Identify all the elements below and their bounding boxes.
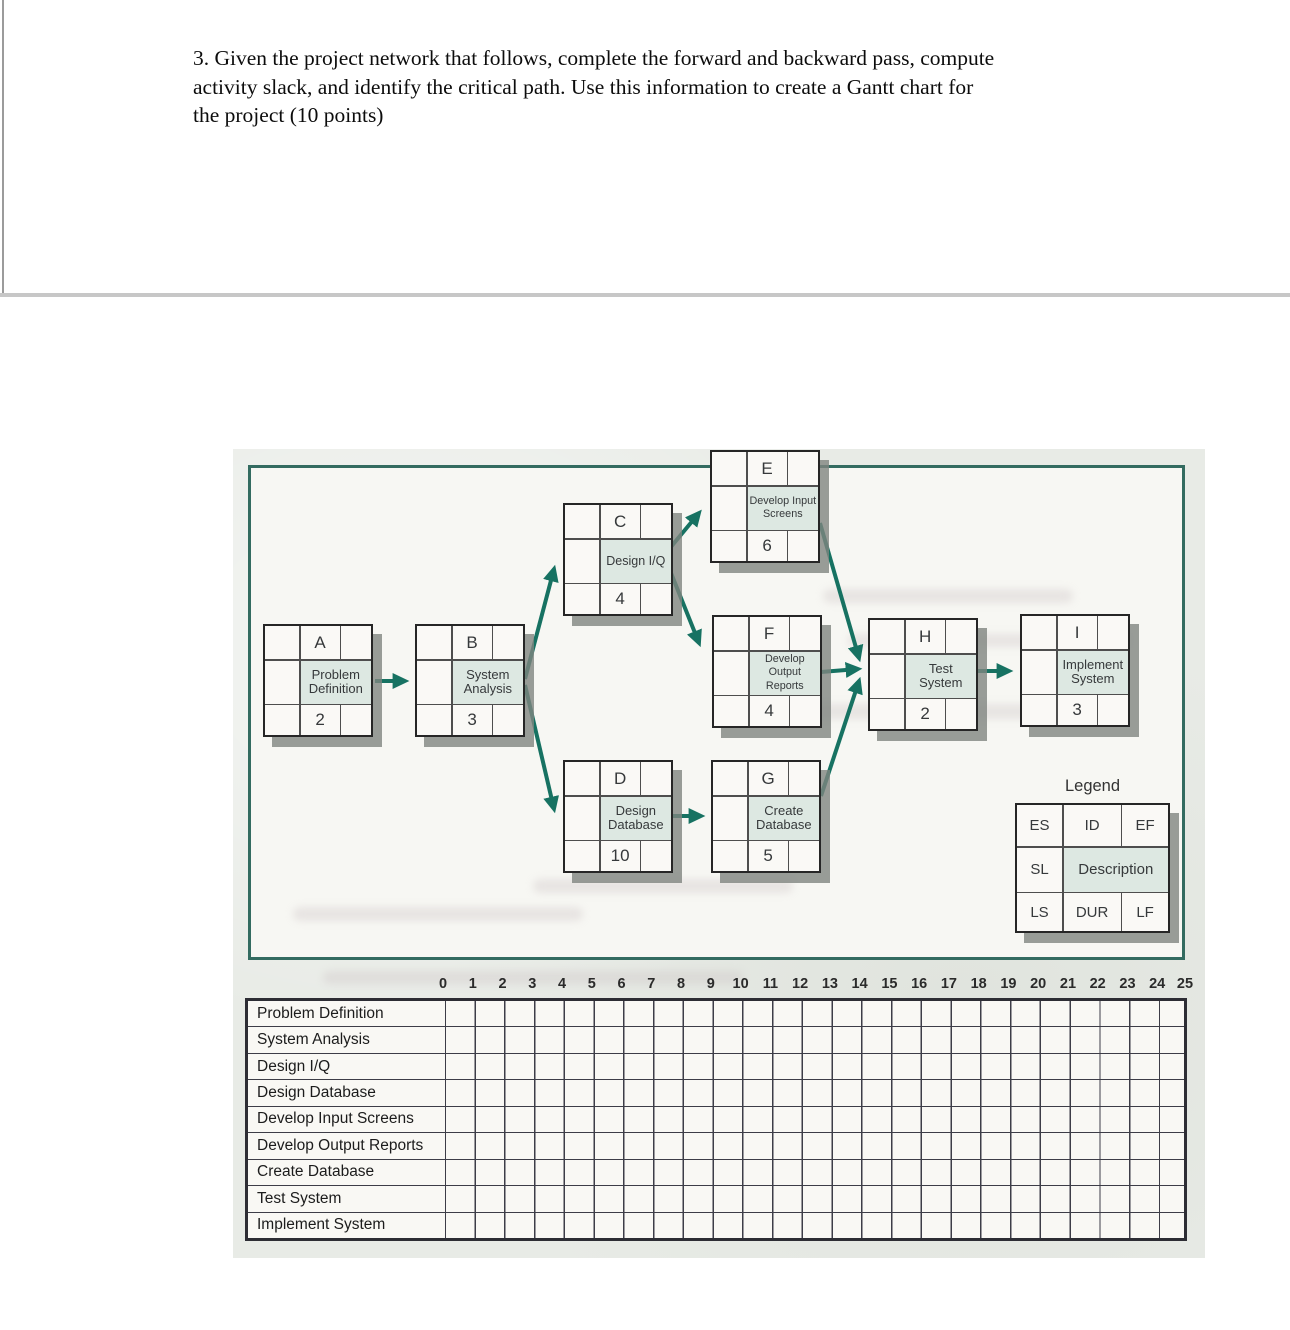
time-tick: 11 xyxy=(763,976,778,992)
time-tick: 24 xyxy=(1149,976,1165,992)
lf-cell xyxy=(641,584,671,614)
ls-cell xyxy=(265,705,299,735)
ef-cell xyxy=(493,626,523,659)
activity-node-c: C Design I/Q 4 xyxy=(563,503,673,616)
gantt-row-label: Problem Definition xyxy=(248,1001,446,1026)
gantt-row: Develop Output Reports xyxy=(248,1133,1184,1159)
es-cell xyxy=(565,505,599,538)
time-tick: 6 xyxy=(618,976,626,992)
es-cell xyxy=(870,620,904,653)
time-tick: 23 xyxy=(1119,976,1135,992)
section-divider xyxy=(0,293,1290,297)
time-tick: 17 xyxy=(941,976,957,992)
es-cell xyxy=(565,762,599,795)
gantt-row-label: Test System xyxy=(248,1186,446,1211)
question-line: 3. Given the project network that follow… xyxy=(193,44,1148,73)
gantt-row: Implement System xyxy=(248,1213,1184,1238)
ef-cell xyxy=(788,452,818,485)
es-cell xyxy=(714,617,748,650)
activity-node-i: I Implement System 3 xyxy=(1020,614,1130,727)
activity-description: Problem Definition xyxy=(301,661,371,704)
time-tick: 13 xyxy=(822,976,838,992)
es-cell xyxy=(713,762,747,795)
time-tick: 7 xyxy=(647,976,655,992)
activity-id: B xyxy=(453,626,492,659)
gantt-row: Design I/Q xyxy=(248,1054,1184,1080)
activity-duration: 3 xyxy=(1058,695,1097,725)
ef-cell xyxy=(341,626,371,659)
time-tick: 1 xyxy=(469,976,477,992)
activity-node-f: F Develop Output Reports 4 xyxy=(712,615,822,728)
gantt-row-label: Design Database xyxy=(248,1080,446,1105)
activity-description: Create Database xyxy=(749,797,819,840)
gantt-row-label: System Analysis xyxy=(248,1027,446,1052)
time-tick: 12 xyxy=(792,976,808,992)
sl-cell xyxy=(565,797,599,840)
gantt-row: Problem Definition xyxy=(248,1001,1184,1027)
gantt-row-label: Develop Output Reports xyxy=(248,1133,446,1158)
legend-ls: LS xyxy=(1017,893,1062,931)
activity-duration: 5 xyxy=(749,841,788,871)
gantt-row: Create Database xyxy=(248,1160,1184,1186)
lf-cell xyxy=(790,696,820,726)
ls-cell xyxy=(714,696,748,726)
time-tick: 16 xyxy=(911,976,927,992)
lf-cell xyxy=(341,705,371,735)
sl-cell xyxy=(714,652,748,695)
activity-node-a: A Problem Definition 2 xyxy=(263,624,373,737)
activity-id: C xyxy=(601,505,640,538)
activity-description: Develop Output Reports xyxy=(750,652,820,695)
gantt-row-cells xyxy=(446,1213,1184,1238)
legend-sl: SL xyxy=(1017,848,1062,892)
gantt-row-label: Design I/Q xyxy=(248,1054,446,1079)
activity-id: G xyxy=(749,762,788,795)
sl-cell xyxy=(265,661,299,704)
gantt-row-label: Develop Input Screens xyxy=(248,1107,446,1132)
sl-cell xyxy=(1022,651,1056,694)
legend-box: ES ID EF SL Description LS DUR LF xyxy=(1015,803,1170,933)
activity-description: Implement System xyxy=(1058,651,1128,694)
gantt-row-label: Create Database xyxy=(248,1160,446,1185)
time-tick: 2 xyxy=(498,976,506,992)
gantt-row: Develop Input Screens xyxy=(248,1107,1184,1133)
lf-cell xyxy=(788,531,818,561)
ef-cell xyxy=(641,762,671,795)
time-tick: 14 xyxy=(852,976,868,992)
gantt-row-cells xyxy=(446,1054,1184,1079)
sl-cell xyxy=(417,661,451,704)
ls-cell xyxy=(713,841,747,871)
lf-cell xyxy=(641,841,671,871)
question-line: activity slack, and identify the critica… xyxy=(193,73,1148,102)
gantt-row-cells xyxy=(446,1107,1184,1132)
activity-id: I xyxy=(1058,616,1097,649)
time-tick: 19 xyxy=(1000,976,1016,992)
ls-cell xyxy=(870,699,904,729)
gantt-time-axis: 0 1 2 3 4 5 6 7 8 9 10 11 12 13 14 15 16… xyxy=(245,976,1187,996)
es-cell xyxy=(417,626,451,659)
gantt-row-cells xyxy=(446,1133,1184,1158)
ef-cell xyxy=(641,505,671,538)
legend-es: ES xyxy=(1017,805,1062,846)
gantt-row: System Analysis xyxy=(248,1027,1184,1053)
es-cell xyxy=(265,626,299,659)
time-tick: 9 xyxy=(707,976,715,992)
page-left-edge-line xyxy=(2,0,4,293)
legend-title: Legend xyxy=(1015,777,1170,796)
gantt-row-cells xyxy=(446,1186,1184,1211)
ef-cell xyxy=(946,620,976,653)
time-tick: 18 xyxy=(971,976,987,992)
activity-duration: 3 xyxy=(453,705,492,735)
time-tick: 10 xyxy=(733,976,749,992)
sl-cell xyxy=(713,797,747,840)
activity-id: H xyxy=(906,620,945,653)
activity-id: A xyxy=(301,626,340,659)
ls-cell xyxy=(565,841,599,871)
activity-description: Develop Input Screens xyxy=(748,487,818,530)
activity-node-e: E Develop Input Screens 6 xyxy=(710,450,820,563)
activity-id: E xyxy=(748,452,787,485)
time-tick: 0 xyxy=(439,976,447,992)
activity-description: Design I/Q xyxy=(601,540,671,583)
time-tick: 25 xyxy=(1177,976,1193,992)
activity-duration: 4 xyxy=(750,696,789,726)
activity-duration: 2 xyxy=(906,699,945,729)
gantt-row: Design Database xyxy=(248,1080,1184,1106)
activity-node-d: D Design Database 10 xyxy=(563,760,673,873)
time-tick: 4 xyxy=(558,976,566,992)
legend-description: Description xyxy=(1064,848,1168,892)
ls-cell xyxy=(417,705,451,735)
time-tick: 5 xyxy=(588,976,596,992)
ef-cell xyxy=(1098,616,1128,649)
sl-cell xyxy=(565,540,599,583)
ls-cell xyxy=(712,531,746,561)
ef-cell xyxy=(789,762,819,795)
activity-duration: 2 xyxy=(301,705,340,735)
ls-cell xyxy=(565,584,599,614)
activity-duration: 10 xyxy=(601,841,640,871)
question-text: 3. Given the project network that follow… xyxy=(193,44,1148,130)
activity-duration: 6 xyxy=(748,531,787,561)
gantt-chart: Problem Definition System Analysis Desig… xyxy=(245,998,1187,1241)
time-tick: 21 xyxy=(1060,976,1076,992)
gantt-row-cells xyxy=(446,1080,1184,1105)
legend-lf: LF xyxy=(1122,893,1168,931)
activity-duration: 4 xyxy=(601,584,640,614)
activity-node-b: B System Analysis 3 xyxy=(415,624,525,737)
time-tick: 15 xyxy=(881,976,897,992)
time-tick: 20 xyxy=(1030,976,1046,992)
activity-description: Test System xyxy=(906,655,976,698)
sl-cell xyxy=(712,487,746,530)
gantt-row-cells xyxy=(446,1160,1184,1185)
activity-id: D xyxy=(601,762,640,795)
lf-cell xyxy=(946,699,976,729)
ls-cell xyxy=(1022,695,1056,725)
gantt-row-cells xyxy=(446,1027,1184,1052)
lf-cell xyxy=(493,705,523,735)
gantt-row-cells xyxy=(446,1001,1184,1026)
activity-id: F xyxy=(750,617,789,650)
legend-dur: DUR xyxy=(1064,893,1121,931)
activity-node-g: G Create Database 5 xyxy=(711,760,821,873)
question-line: the project (10 points) xyxy=(193,101,1148,130)
gantt-row: Test System xyxy=(248,1186,1184,1212)
sl-cell xyxy=(870,655,904,698)
lf-cell xyxy=(789,841,819,871)
activity-description: System Analysis xyxy=(453,661,523,704)
legend-ef: EF xyxy=(1122,805,1168,846)
gantt-row-label: Implement System xyxy=(248,1213,446,1238)
scanned-figure: A Problem Definition 2 B System Analysis… xyxy=(233,449,1205,1258)
es-cell xyxy=(712,452,746,485)
es-cell xyxy=(1022,616,1056,649)
legend-id: ID xyxy=(1064,805,1121,846)
activity-node-h: H Test System 2 xyxy=(868,618,978,731)
ef-cell xyxy=(790,617,820,650)
activity-description: Design Database xyxy=(601,797,671,840)
time-tick: 8 xyxy=(677,976,685,992)
time-tick: 3 xyxy=(528,976,536,992)
lf-cell xyxy=(1098,695,1128,725)
time-tick: 22 xyxy=(1090,976,1106,992)
